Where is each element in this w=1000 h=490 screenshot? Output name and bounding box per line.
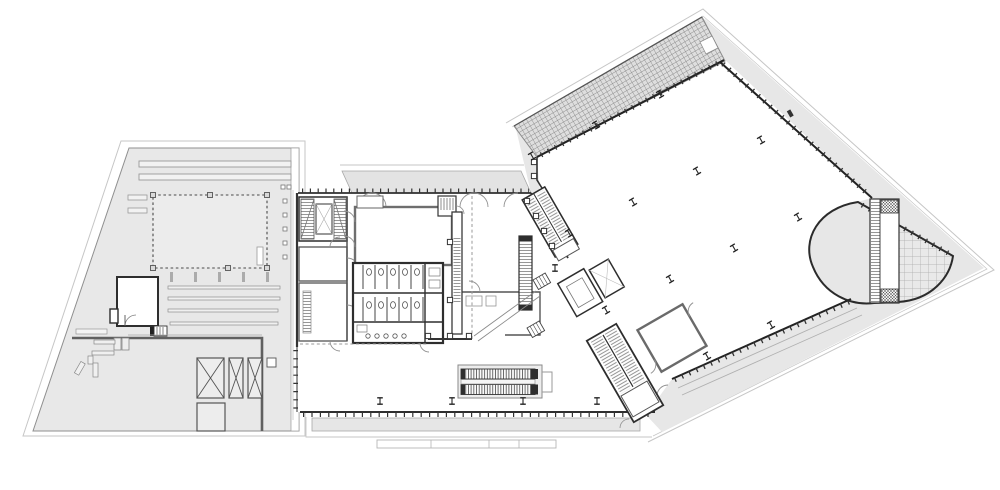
hall-vestibule (357, 196, 383, 208)
roof-hatch-square (267, 358, 276, 367)
service-shaft-1 (452, 212, 462, 334)
south-canopy (312, 418, 640, 431)
straight-stair-strip (870, 199, 899, 303)
escalator-run-1 (461, 369, 535, 379)
skylight-box-small-2 (248, 358, 262, 398)
skylight-box-small-1 (229, 358, 243, 398)
stair-strip-treads (871, 200, 880, 302)
large-hall (344, 196, 452, 265)
floor-plan-canvas: Floor plan (0, 0, 1000, 490)
scissor-stairwell (299, 197, 347, 241)
stair-landing-top (881, 200, 898, 213)
west-wing-parking-roof (23, 141, 305, 436)
plant-room-step (150, 326, 167, 336)
duct-shaft-west (303, 291, 311, 333)
skylight-box-large (197, 358, 224, 398)
plant-room (110, 277, 158, 326)
entry-steps-strip (377, 440, 556, 448)
stair-landing-bottom (881, 289, 898, 302)
escalator-pair (458, 365, 552, 398)
floor-plan-page: Floor plan Floor plan (0, 0, 1000, 490)
skylight-box-plain (197, 403, 225, 431)
courtyard-edge-bar (257, 247, 263, 265)
escalator-run-2 (461, 385, 535, 395)
courtyard-opening (151, 193, 270, 271)
north-roof-band (342, 171, 531, 193)
